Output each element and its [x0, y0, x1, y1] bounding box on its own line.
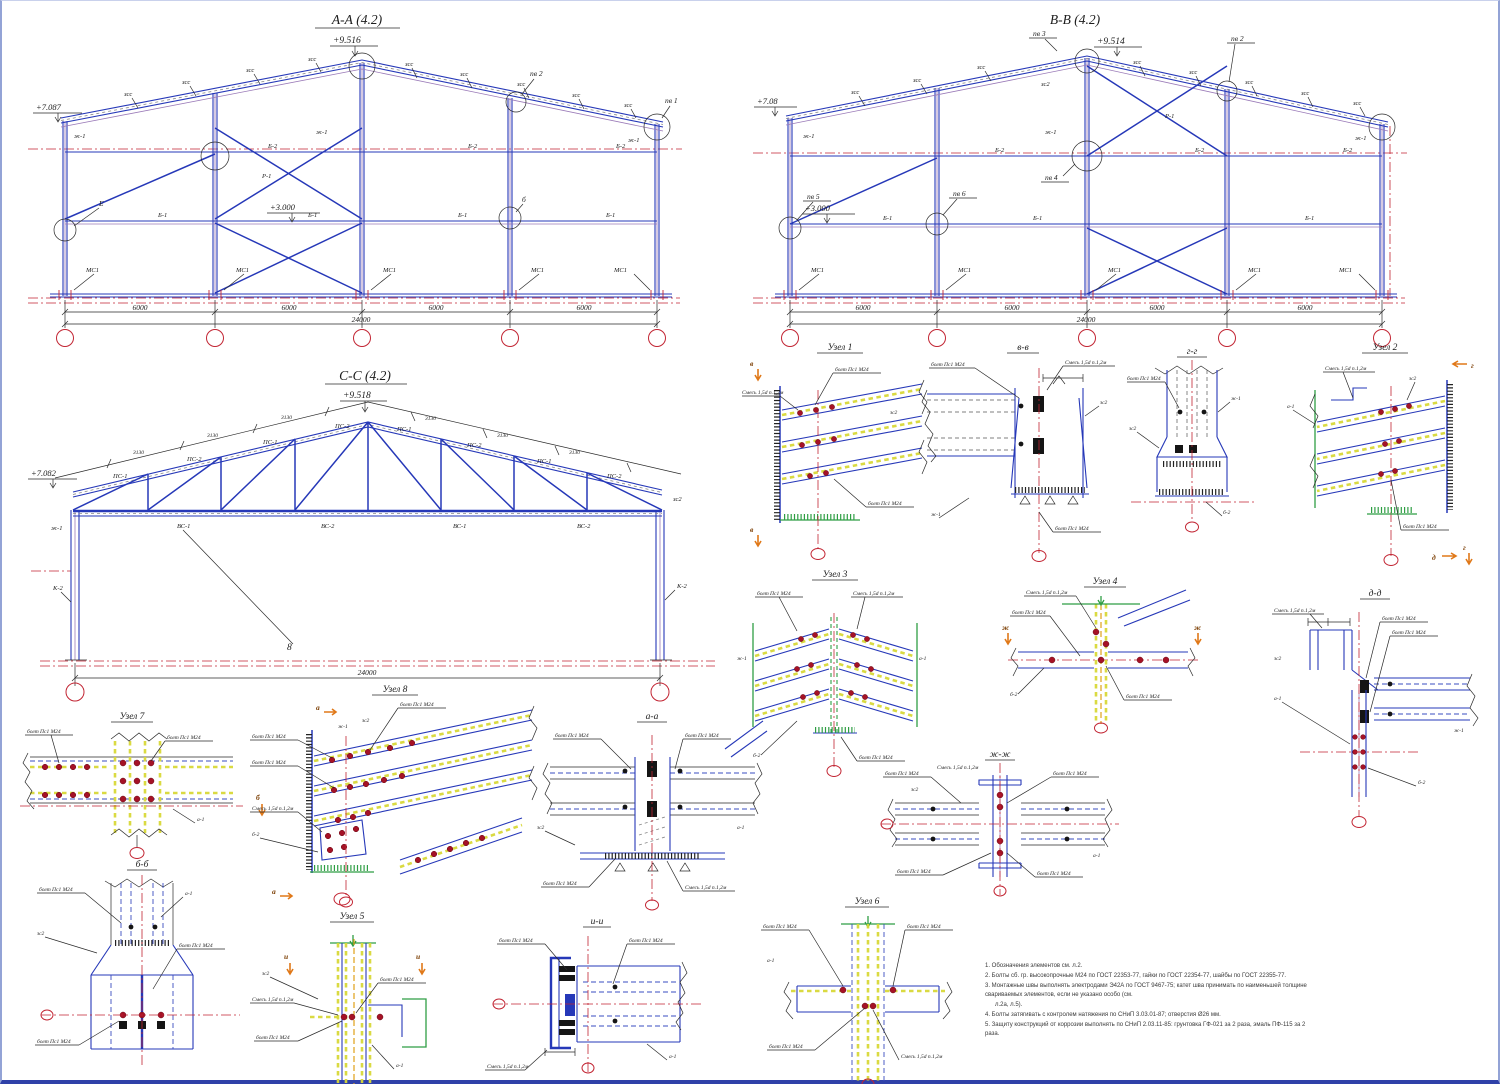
svg-text:б-2: б-2: [1418, 779, 1426, 786]
uzel8-geometry: [309, 706, 537, 907]
detail-zhzh: ж-ж болт Пс1 М24 Смесь 1,5d п.1,2м болт …: [875, 745, 1125, 900]
svg-text:МС1: МС1: [1338, 267, 1352, 274]
svg-text:ж: ж: [1194, 623, 1201, 632]
svg-text:зсс: зсс: [850, 89, 859, 96]
svg-text:МС1: МС1: [613, 267, 627, 274]
svg-text:ПС-2: ПС-2: [186, 456, 202, 463]
svg-text:а-1: а-1: [396, 1063, 404, 1069]
svg-text:МС1: МС1: [1247, 267, 1261, 274]
bb-labels: В-В (4.2) +9.514 пв 3 пв 2 пв 4 пв 5 пв …: [754, 12, 1375, 290]
svg-text:3130: 3130: [280, 415, 292, 421]
aa-axis-bubbles: [57, 330, 666, 347]
svg-text:Б-1: Б-1: [157, 212, 167, 219]
svg-text:МС1: МС1: [957, 267, 971, 274]
bb-cut-title: б-б: [136, 859, 150, 870]
svg-text:Смесь 1,5d п.1,2м: Смесь 1,5d п.1,2м: [252, 806, 294, 812]
svg-text:ж-1: ж-1: [737, 656, 747, 662]
detail-vv: в-в болт Пс1 М24 Смесь 1,5d п.1,2м зс2 ж…: [915, 338, 1130, 568]
section-cc: 3130 3130 3130 3130 3130 3130 С-С (4.2) …: [25, 358, 725, 703]
note-line: 3. Монтажные швы выполнять электродами Э…: [985, 982, 1307, 1000]
svg-text:зс2: зс2: [672, 496, 682, 503]
svg-text:МС1: МС1: [1107, 267, 1121, 274]
svg-text:болт Пс1 М24: болт Пс1 М24: [39, 886, 73, 893]
svg-text:болт Пс1 М24: болт Пс1 М24: [1392, 629, 1426, 636]
svg-text:Б-1: Б-1: [882, 215, 892, 222]
uzel4-title: Узел 4: [1093, 577, 1118, 587]
svg-text:ж-1: ж-1: [316, 129, 327, 136]
detail-gg: г-г болт Пс1 М24 ж-1 зс2 б-2: [1125, 342, 1260, 537]
gg-callouts: болт Пс1 М24 ж-1 зс2 б-2: [1127, 375, 1241, 516]
uzel1-geometry: [777, 380, 927, 560]
svg-text:болт Пс1 М24: болт Пс1 М24: [1012, 609, 1046, 616]
svg-text:болт Пс1 М24: болт Пс1 М24: [897, 868, 931, 875]
svg-text:6000: 6000: [282, 303, 297, 312]
svg-text:болт Пс1 М24: болт Пс1 М24: [252, 733, 286, 740]
aa-pv1: пв 1: [665, 96, 678, 105]
svg-text:зсс: зсс: [459, 71, 468, 78]
detail-uzel5: Узел 5 и и зс2 Смесь 1,5d п.1,2м болт Пс…: [250, 905, 455, 1084]
vv-geometry: [922, 368, 1089, 562]
svg-text:ПС-2: ПС-2: [466, 442, 482, 449]
svg-text:ПС-2: ПС-2: [334, 423, 350, 430]
svg-text:болт Пс1 М24: болт Пс1 М24: [1055, 525, 1089, 532]
bb-pv2: пв 2: [1231, 34, 1244, 43]
svg-text:Смесь 1,5d п.1,2м: Смесь 1,5d п.1,2м: [937, 765, 979, 771]
svg-text:6000: 6000: [133, 303, 148, 312]
svg-text:3130: 3130: [496, 433, 508, 439]
svg-text:а-1: а-1: [1274, 696, 1282, 702]
uzel1-cut-markers: в в: [750, 359, 761, 546]
svg-text:болт Пс1 М24: болт Пс1 М24: [380, 976, 414, 983]
note-line: 2. Болты сб. гр. высокопрочные М24 по ГО…: [985, 972, 1307, 981]
cc-ridge-elev: +9.518: [343, 391, 371, 401]
svg-text:6000: 6000: [1150, 303, 1165, 312]
svg-text:а-1: а-1: [1093, 853, 1101, 859]
aa-level: +3.000: [270, 202, 296, 212]
svg-text:а-1: а-1: [919, 656, 927, 662]
section-aa: А-А (4.2) +9.516 +7.087 +3.000 зсс зсс з…: [20, 6, 720, 348]
svg-text:болт Пс1 М24: болт Пс1 М24: [543, 880, 577, 887]
svg-text:МС1: МС1: [235, 267, 249, 274]
svg-text:зс2: зс2: [536, 825, 545, 831]
svg-text:а-1: а-1: [669, 1054, 677, 1060]
bb-pv3: пв 3: [1033, 29, 1046, 38]
svg-text:болт Пс1 М24: болт Пс1 М24: [685, 732, 719, 739]
uzel8-title: Узел 8: [383, 685, 408, 695]
svg-text:К-2: К-2: [676, 583, 687, 590]
aa-eave-elev: +7.087: [36, 102, 62, 112]
svg-text:ВС-1: ВС-1: [177, 523, 190, 530]
svg-text:зс2: зс2: [36, 931, 45, 937]
svg-text:болт Пс1 М24: болт Пс1 М24: [37, 1038, 71, 1045]
svg-text:Смесь 1,5d п.1,2м: Смесь 1,5d п.1,2м: [1065, 360, 1107, 366]
svg-text:а: а: [272, 887, 276, 896]
aa-dimensions: 6000 6000 6000 6000 24000: [57, 300, 666, 347]
svg-text:а-1: а-1: [1287, 404, 1295, 410]
svg-text:зсс: зсс: [571, 92, 580, 99]
svg-text:ж-1: ж-1: [931, 512, 941, 518]
detail-uzel2: Узел 2 г г Смесь 1,5d п.1,2м зс2 а-1 бол…: [1285, 338, 1485, 573]
zhzh-title: ж-ж: [990, 750, 1011, 760]
aa-labels: А-А (4.2) +9.516 +7.087 +3.000 зсс зсс з…: [33, 12, 678, 290]
aa-cut-callouts: болт Пс1 М24 болт Пс1 М24 зс2 а-1 болт П…: [536, 732, 745, 891]
svg-text:болт Пс1 М24: болт Пс1 М24: [27, 728, 61, 735]
svg-text:б-2: б-2: [1223, 509, 1231, 516]
svg-text:зсс: зсс: [181, 79, 190, 86]
svg-text:зсс: зсс: [516, 81, 525, 88]
svg-text:б-2: б-2: [1010, 691, 1018, 698]
svg-text:Б-2: Б-2: [267, 143, 278, 150]
svg-text:болт Пс1 М24: болт Пс1 М24: [1126, 693, 1160, 700]
dd-geometry: [1300, 612, 1478, 828]
svg-text:ПС-1: ПС-1: [262, 439, 277, 446]
bb-total-dim: 24000: [1077, 315, 1096, 324]
svg-text:ж-1: ж-1: [628, 137, 639, 144]
detail-uzel7: Узел 7 болт Пс1 М24 болт Пс1 М24 а-1: [15, 705, 250, 865]
svg-text:болт Пс1 М24: болт Пс1 М24: [1403, 523, 1437, 530]
svg-text:зсс: зсс: [1244, 79, 1253, 86]
uzel2-geometry: [1310, 380, 1450, 566]
svg-text:болт Пс1 М24: болт Пс1 М24: [1127, 375, 1161, 382]
uzel5-title: Узел 5: [340, 912, 365, 922]
uzel4-callouts: Смесь 1,5d п.1,2м болт Пс1 М24 б-2 болт …: [1010, 590, 1172, 700]
svg-text:болт Пс1 М24: болт Пс1 М24: [179, 942, 213, 949]
svg-text:болт Пс1 М24: болт Пс1 М24: [629, 937, 663, 944]
cc-total-dim: 24000: [358, 668, 377, 677]
svg-text:ж-1: ж-1: [803, 133, 814, 140]
aa-title: А-А (4.2): [331, 12, 383, 27]
svg-text:а-1: а-1: [185, 891, 193, 897]
svg-text:Б-2: Б-2: [1194, 147, 1205, 154]
svg-text:б: б: [256, 793, 260, 802]
svg-text:3130: 3130: [132, 450, 144, 456]
marker-d-standalone: д: [1428, 548, 1468, 572]
svg-text:зсс: зсс: [1300, 90, 1309, 97]
svg-text:Смесь 1,5d п.1,2м: Смесь 1,5d п.1,2м: [1026, 590, 1068, 596]
svg-text:Б-1: Б-1: [1032, 215, 1042, 222]
svg-text:зс2: зс2: [361, 718, 370, 724]
svg-text:МС1: МС1: [85, 267, 99, 274]
aa-total-dim: 24000: [352, 315, 371, 324]
svg-text:зс2: зс2: [1273, 656, 1282, 662]
svg-text:МС1: МС1: [382, 267, 396, 274]
detail-uzel6: Узел 6 болт Пс1 М24 болт Пс1 М24 а-1 бол…: [755, 890, 980, 1084]
gg-geometry: [1131, 360, 1255, 532]
aa-ridge-elev: +9.516: [333, 36, 361, 46]
svg-text:зс2: зс2: [1040, 81, 1050, 88]
svg-text:Смесь 1,5d п.1,2м: Смесь 1,5d п.1,2м: [901, 1054, 943, 1060]
uzel7-title: Узел 7: [120, 712, 146, 722]
svg-text:зсс: зсс: [976, 64, 985, 71]
svg-text:зсс: зсс: [912, 77, 921, 84]
svg-text:ПС-2: ПС-2: [606, 473, 622, 480]
axis-ellipse-standalone: [328, 890, 358, 908]
uzel2-cut-markers: г г: [1453, 361, 1474, 564]
svg-text:К-2: К-2: [52, 585, 63, 592]
svg-text:Е: Е: [98, 199, 104, 208]
svg-text:ПС-1: ПС-1: [396, 426, 411, 433]
svg-text:ВС-1: ВС-1: [453, 523, 466, 530]
cad-drawing-sheet: А-А (4.2) +9.516 +7.087 +3.000 зсс зсс з…: [0, 0, 1500, 1084]
svg-text:Б-2: Б-2: [994, 147, 1005, 154]
svg-text:болт Пс1 М24: болт Пс1 М24: [400, 701, 434, 708]
svg-text:Б-1: Б-1: [307, 212, 317, 219]
zhzh-callouts: болт Пс1 М24 Смесь 1,5d п.1,2м болт Пс1 …: [883, 765, 1101, 877]
section-bb: В-В (4.2) +9.514 пв 3 пв 2 пв 4 пв 5 пв …: [745, 6, 1495, 348]
svg-text:МС1: МС1: [530, 267, 544, 274]
svg-text:Б-1: Б-1: [457, 212, 467, 219]
bb-ridge-elev: +9.514: [1097, 37, 1125, 47]
svg-text:и: и: [416, 952, 420, 961]
svg-text:а-1: а-1: [197, 817, 205, 823]
uzel1-title: Узел 1: [828, 343, 853, 353]
svg-text:зс2: зс2: [1408, 376, 1417, 382]
svg-text:болт Пс1 М24: болт Пс1 М24: [1053, 770, 1087, 777]
bb-title: В-В (4.2): [1050, 12, 1101, 27]
uzel5-geometry: [310, 935, 426, 1084]
uzel8-callouts: болт Пс1 М24 болт Пс1 М24 Смесь 1,5d п.1…: [250, 701, 446, 852]
note-line: 5. Защиту конструкций от коррозии выполн…: [985, 1021, 1307, 1039]
svg-text:зсс: зсс: [245, 67, 254, 74]
svg-text:болт Пс1 М24: болт Пс1 М24: [835, 366, 869, 373]
svg-text:зс2: зс2: [889, 410, 898, 416]
svg-text:Смесь 1,5d п.1,2м: Смесь 1,5d п.1,2м: [1274, 608, 1316, 614]
uzel1-callouts: болт Пс1 М24 Смесь 1,5d п.1,2м болт Пс1 …: [742, 366, 914, 507]
svg-text:Смесь 1,5d п.1,2м: Смесь 1,5d п.1,2м: [252, 997, 294, 1003]
uzel7-geometry: [20, 733, 243, 859]
svg-text:ж-1: ж-1: [338, 724, 348, 730]
svg-text:ВС-2: ВС-2: [577, 523, 591, 530]
svg-text:МС1: МС1: [810, 267, 824, 274]
svg-text:зс2: зс2: [910, 787, 919, 793]
svg-text:Смесь 1,5d п.1,2м: Смесь 1,5d п.1,2м: [487, 1064, 529, 1070]
bb-level: +3.000: [805, 203, 831, 213]
svg-text:зсс: зсс: [1132, 59, 1141, 66]
svg-text:Смесь 1,5d п.1,2м: Смесь 1,5d п.1,2м: [742, 390, 784, 396]
cc-eave-elev: +7.082: [31, 468, 57, 478]
svg-text:зсс: зсс: [1352, 100, 1361, 107]
svg-text:болт Пс1 М24: болт Пс1 М24: [868, 500, 902, 507]
detail-aa-cut: а-а болт Пс1 М24 болт Пс1 М24 зс2 а-1 бо…: [535, 705, 770, 915]
svg-text:болт Пс1 М24: болт Пс1 М24: [555, 732, 589, 739]
detail-ii: и-и болт Пс1 М24 болт Пс1 М24 а-1 Смесь …: [485, 910, 710, 1080]
cc-truss: [65, 422, 672, 660]
svg-text:6000: 6000: [577, 303, 592, 312]
svg-text:и: и: [284, 952, 288, 961]
svg-text:6000: 6000: [429, 303, 444, 312]
svg-text:болт Пс1 М24: болт Пс1 М24: [885, 770, 919, 777]
ii-callouts: болт Пс1 М24 болт Пс1 М24 а-1 Смесь 1,5d…: [485, 937, 677, 1070]
svg-text:болт Пс1 М24: болт Пс1 М24: [1382, 615, 1416, 622]
bb-cut-geometry: [41, 875, 240, 1065]
svg-text:Б-1: Б-1: [605, 212, 615, 219]
svg-text:Смесь 1,5d п.1,2м: Смесь 1,5d п.1,2м: [1325, 366, 1367, 372]
svg-text:ж-1: ж-1: [74, 133, 85, 140]
svg-text:зсс: зсс: [404, 61, 413, 68]
bb-pv6: пв 6: [953, 189, 966, 198]
uzel7-callouts: болт Пс1 М24 болт Пс1 М24 а-1: [25, 728, 213, 823]
svg-text:ВС-2: ВС-2: [321, 523, 335, 530]
dd-title: д-д: [1369, 588, 1382, 599]
bb-pv4: пв 4: [1045, 173, 1058, 182]
bb-eave-elev: +7.08: [757, 96, 778, 106]
svg-text:зсс: зсс: [623, 102, 632, 109]
general-notes: 1. Обозначения элементов см. л.2. 2. Бол…: [985, 962, 1307, 1040]
svg-text:зсс: зсс: [1188, 69, 1197, 76]
svg-text:6000: 6000: [1298, 303, 1313, 312]
note-line: 4. Болты затягивать с контролем натяжени…: [985, 1011, 1307, 1020]
svg-text:Р-1: Р-1: [261, 173, 271, 180]
zhzh-geometry: [881, 763, 1119, 896]
svg-text:болт Пс1 М24: болт Пс1 М24: [499, 937, 533, 944]
bb-cut-callouts: болт Пс1 М24 а-1 зс2 болт Пс1 М24 болт П…: [35, 886, 225, 1045]
detail-uzel1: Узел 1 в в болт Пс1 М24 Смесь 1,5d п.1,2…: [740, 338, 940, 568]
detail-uzel8: Узел 8 а а б болт Пс1 М24 болт Пс1 М24 С…: [250, 678, 540, 908]
svg-text:ж-1: ж-1: [1454, 728, 1464, 734]
aa-cut-title: а-а: [646, 712, 659, 722]
svg-text:ПС-1: ПС-1: [536, 458, 551, 465]
note-line: 1. Обозначения элементов см. л.2.: [985, 962, 1307, 971]
cc-centerlines: [31, 571, 715, 666]
gg-title: г-г: [1187, 347, 1198, 357]
svg-text:болт Пс1 М24: болт Пс1 М24: [256, 1034, 290, 1041]
svg-text:д: д: [1432, 553, 1436, 562]
uzel6-title: Узел 6: [855, 897, 880, 907]
detail-dd: д-д Смесь 1,5d п.1,2м болт Пс1 М24 болт …: [1270, 582, 1485, 832]
svg-text:6000: 6000: [1005, 303, 1020, 312]
svg-text:Смесь 1,5d п.1,2м: Смесь 1,5d п.1,2м: [685, 885, 727, 891]
svg-text:болт Пс1 М24: болт Пс1 М24: [167, 734, 201, 741]
svg-text:б-2: б-2: [252, 831, 260, 838]
vv-title: в-в: [1017, 343, 1028, 353]
cc-title: С-С (4.2): [339, 368, 391, 383]
svg-text:ПС-1: ПС-1: [112, 473, 127, 480]
svg-text:Смесь 1,5d п.1,2м: Смесь 1,5d п.1,2м: [853, 591, 895, 597]
svg-text:болт Пс1 М24: болт Пс1 М24: [907, 923, 941, 930]
svg-text:зс2: зс2: [1099, 400, 1108, 406]
svg-text:Р-1: Р-1: [1164, 113, 1174, 120]
svg-text:болт Пс1 М24: болт Пс1 М24: [757, 590, 791, 597]
dd-callouts: Смесь 1,5d п.1,2м болт Пс1 М24 болт Пс1 …: [1272, 608, 1464, 786]
svg-text:в: в: [750, 525, 754, 534]
note-line: л.2а, л.5).: [985, 1001, 1307, 1010]
bb-pv5: пв 5: [807, 192, 820, 201]
svg-text:6000: 6000: [856, 303, 871, 312]
svg-text:болт Пс1 М24: болт Пс1 М24: [931, 361, 965, 368]
svg-text:а-1: а-1: [737, 825, 745, 831]
svg-text:Б-2: Б-2: [615, 143, 626, 150]
svg-text:3130: 3130: [206, 433, 218, 439]
cc-mark-8: 8: [287, 643, 292, 653]
svg-text:а-1: а-1: [767, 958, 775, 964]
uzel2-title: Узел 2: [1373, 343, 1398, 353]
svg-text:Б-2: Б-2: [467, 143, 478, 150]
svg-text:3130: 3130: [568, 450, 580, 456]
uzel3-title: Узел 3: [823, 570, 848, 580]
svg-text:болт Пс1 М24: болт Пс1 М24: [769, 1043, 803, 1050]
svg-text:б: б: [522, 195, 526, 204]
svg-text:болт Пс1 М24: болт Пс1 М24: [763, 923, 797, 930]
detail-bb-cut: б-б болт Пс1 М24 а-1 зс2 болт Пс1 М24 бо…: [35, 853, 250, 1073]
svg-text:зс2: зс2: [261, 971, 270, 977]
svg-text:зсс: зсс: [123, 91, 132, 98]
aa-pv2: пв 2: [530, 69, 543, 78]
svg-text:зсс: зсс: [307, 56, 316, 63]
svg-text:ж-1: ж-1: [1045, 129, 1056, 136]
svg-text:ж-1: ж-1: [51, 525, 62, 532]
svg-text:болт Пс1 М24: болт Пс1 М24: [1037, 870, 1071, 877]
svg-text:ж-1: ж-1: [1231, 396, 1241, 402]
detail-uzel4: Узел 4 ж ж Смесь 1,5d п.1,2м болт Пс1 М2…: [1000, 572, 1205, 737]
svg-text:Б-2: Б-2: [1342, 147, 1353, 154]
svg-text:Б-1: Б-1: [1304, 215, 1314, 222]
svg-text:г: г: [1471, 361, 1474, 370]
svg-text:ж: ж: [1002, 623, 1009, 632]
svg-text:зс2: зс2: [1128, 426, 1137, 432]
svg-text:болт Пс1 М24: болт Пс1 М24: [252, 759, 286, 766]
uzel2-callouts: Смесь 1,5d п.1,2м зс2 а-1 болт Пс1 М24: [1287, 366, 1449, 530]
svg-text:а: а: [316, 703, 320, 712]
svg-text:в: в: [750, 359, 754, 368]
ii-title: и-и: [591, 917, 604, 927]
svg-text:3130: 3130: [424, 416, 436, 422]
svg-text:ж-1: ж-1: [1355, 135, 1366, 142]
